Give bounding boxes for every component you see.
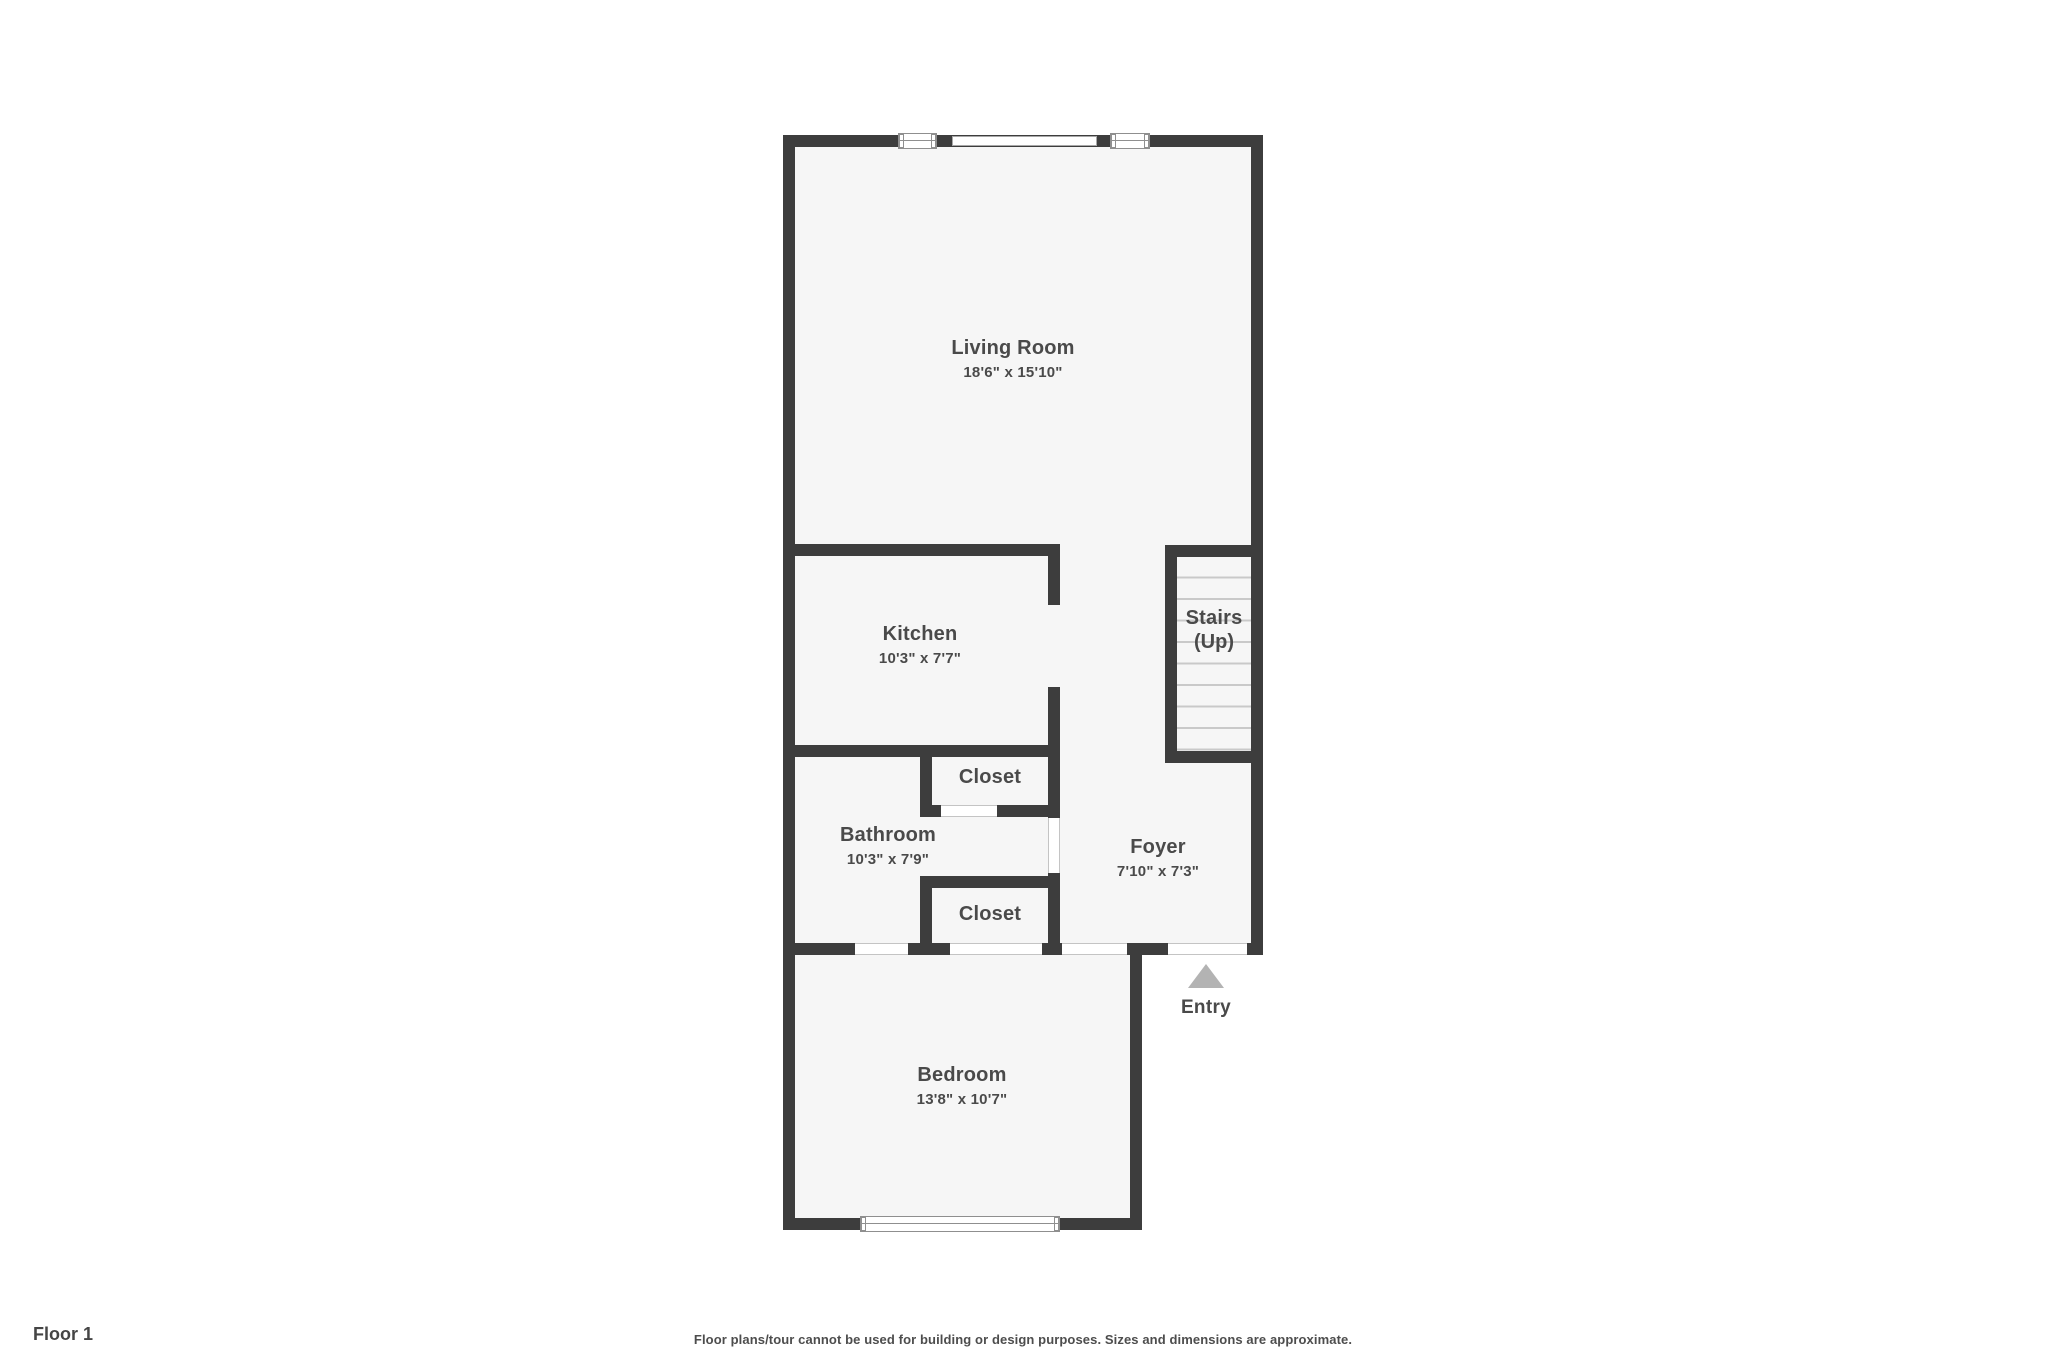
door-closet-upper xyxy=(941,805,997,817)
bathroom-label: Bathroom 10'3" x 7'9" xyxy=(840,823,936,869)
floor-title: Floor 1 xyxy=(33,1324,93,1345)
wall-stairs-top xyxy=(1165,545,1263,557)
window-cap xyxy=(1111,134,1116,148)
room-dimensions: 13'8" x 10'7" xyxy=(917,1091,1008,1109)
room-name: Bathroom xyxy=(840,823,936,847)
living-room-label: Living Room 18'6" x 15'10" xyxy=(951,336,1074,382)
bedroom-label: Bedroom 13'8" x 10'7" xyxy=(917,1063,1008,1109)
room-name: Stairs xyxy=(1186,606,1243,630)
floor-plan-canvas: Living Room 18'6" x 15'10" Kitchen 10'3"… xyxy=(0,0,2048,1365)
room-name: Foyer xyxy=(1117,835,1199,859)
window-living-room-left-icon xyxy=(898,133,937,149)
room-name: Closet xyxy=(959,765,1021,789)
window-bedroom-icon xyxy=(860,1216,1060,1232)
room-dimensions: 18'6" x 15'10" xyxy=(951,364,1074,382)
room-name: Kitchen xyxy=(879,622,961,646)
room-dimensions: 7'10" x 7'3" xyxy=(1117,863,1199,881)
stairs-label: Stairs (Up) xyxy=(1186,606,1243,655)
window-cap xyxy=(931,134,936,148)
wall-hall-upper xyxy=(1048,544,1060,605)
closet-lower-label: Closet xyxy=(959,902,1021,926)
wall-closet-lower-left xyxy=(920,876,932,955)
room-name: Closet xyxy=(959,902,1021,926)
stairs-direction: (Up) xyxy=(1186,630,1243,655)
door-entry xyxy=(1168,943,1247,955)
foyer-label: Foyer 7'10" x 7'3" xyxy=(1117,835,1199,881)
wall-stairs-bottom xyxy=(1165,751,1263,763)
room-name: Bedroom xyxy=(917,1063,1008,1087)
entry-label: Entry xyxy=(1181,997,1231,1019)
window-cap xyxy=(861,1217,866,1231)
door-closet-lower xyxy=(950,943,1042,955)
window-living-room-right-icon xyxy=(1110,133,1150,149)
door-bedroom xyxy=(1062,943,1127,955)
room-dimensions: 10'3" x 7'9" xyxy=(840,851,936,869)
closet-upper-label: Closet xyxy=(959,765,1021,789)
room-name: Living Room xyxy=(951,336,1074,360)
entry-arrow-icon xyxy=(1188,964,1224,988)
wall-stairs-left xyxy=(1165,545,1177,763)
door-bathroom-bedroom xyxy=(855,943,908,955)
door-bathroom xyxy=(1048,818,1060,873)
wall-closet-lower-top xyxy=(920,876,1060,888)
wall-living-kitchen xyxy=(783,544,1060,556)
window-cap xyxy=(899,134,904,148)
wall-left xyxy=(783,135,795,1230)
room-dimensions: 10'3" x 7'7" xyxy=(879,650,961,668)
window-cap xyxy=(1144,134,1149,148)
kitchen-label: Kitchen 10'3" x 7'7" xyxy=(879,622,961,668)
window-cap xyxy=(1054,1217,1059,1231)
wall-bedroom-right xyxy=(1130,943,1142,1230)
disclaimer-text: Floor plans/tour cannot be used for buil… xyxy=(694,1332,1352,1347)
window-living-room-wide xyxy=(952,136,1097,146)
